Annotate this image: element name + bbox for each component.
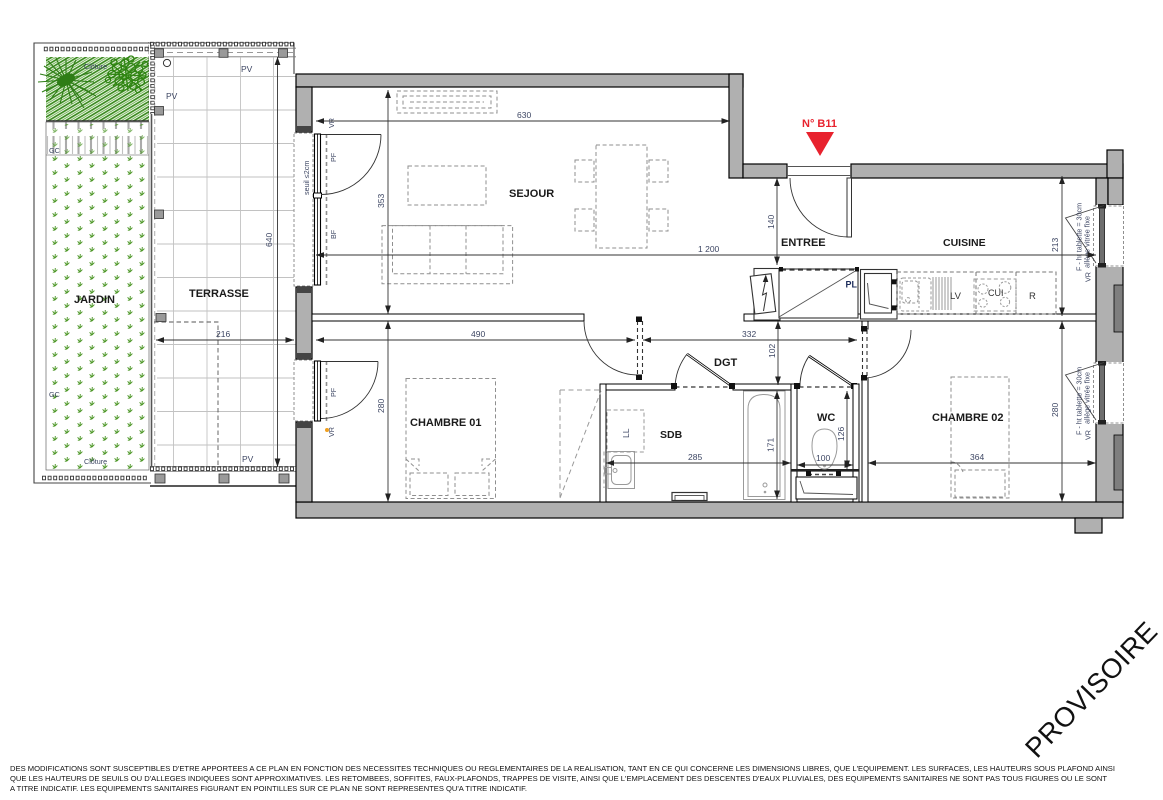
svg-text:332: 332	[742, 329, 756, 339]
svg-text:280: 280	[1050, 403, 1060, 417]
svg-text:280: 280	[376, 399, 386, 413]
svg-text:353: 353	[376, 194, 386, 208]
svg-text:VR: VR	[327, 427, 336, 437]
svg-text:VR: VR	[327, 118, 336, 128]
svg-text:WC: WC	[817, 412, 835, 424]
svg-text:LL: LL	[621, 428, 631, 438]
svg-text:Clôture: Clôture	[84, 457, 107, 466]
svg-text:CHAMBRE 01: CHAMBRE 01	[410, 417, 482, 429]
svg-text:490: 490	[471, 329, 485, 339]
svg-text:DES MODIFICATIONS SONT SUSCEPT: DES MODIFICATIONS SONT SUSCEPTIBLES D'ET…	[10, 764, 1115, 773]
svg-text:VR: VR	[1084, 430, 1093, 440]
svg-text:allège vitrée fixe: allège vitrée fixe	[1083, 216, 1092, 268]
svg-text:R: R	[1029, 291, 1036, 302]
svg-text:CHAMBRE 02: CHAMBRE 02	[932, 412, 1004, 424]
svg-text:N° B11: N° B11	[802, 118, 837, 130]
svg-text:364: 364	[970, 452, 984, 462]
svg-text:PV: PV	[241, 64, 253, 74]
svg-text:Clôture: Clôture	[84, 62, 107, 71]
svg-text:TERRASSE: TERRASSE	[189, 288, 249, 300]
svg-text:PV: PV	[166, 91, 178, 101]
svg-text:1 200: 1 200	[698, 244, 720, 254]
svg-text:BF: BF	[329, 229, 338, 239]
svg-text:allège vitrée fixe: allège vitrée fixe	[1083, 372, 1092, 424]
svg-text:PV: PV	[242, 454, 254, 464]
svg-text:GC: GC	[49, 390, 60, 399]
svg-text:PL: PL	[846, 280, 858, 290]
svg-text:CUI: CUI	[988, 288, 1004, 298]
svg-text:216: 216	[216, 329, 230, 339]
svg-text:PF: PF	[329, 387, 338, 397]
svg-text:CUISINE: CUISINE	[943, 237, 986, 249]
svg-text:213: 213	[1050, 238, 1060, 252]
svg-text:seuil ≤2cm: seuil ≤2cm	[302, 161, 311, 195]
svg-text:102: 102	[767, 344, 777, 358]
svg-text:171: 171	[766, 438, 776, 452]
svg-text:SDB: SDB	[660, 429, 683, 441]
svg-text:A TITRE INDICATIF. LES EQUIPEM: A TITRE INDICATIF. LES EQUIPEMENTS SANIT…	[10, 784, 527, 793]
svg-text:ENTREE: ENTREE	[781, 237, 826, 249]
svg-text:JARDIN: JARDIN	[74, 294, 115, 306]
svg-text:630: 630	[517, 110, 531, 120]
svg-text:LV: LV	[950, 291, 962, 302]
svg-text:126: 126	[836, 427, 846, 441]
svg-text:SEJOUR: SEJOUR	[509, 188, 554, 200]
svg-text:DGT: DGT	[714, 357, 738, 369]
svg-text:VR: VR	[1084, 272, 1093, 282]
svg-text:100: 100	[816, 453, 830, 463]
svg-text:285: 285	[688, 452, 702, 462]
svg-text:140: 140	[766, 215, 776, 229]
svg-text:PF: PF	[329, 152, 338, 162]
svg-text:QUE LES HAUTEURS DE SEUILS OU: QUE LES HAUTEURS DE SEUILS OU D'ALLEGES …	[10, 774, 1108, 783]
svg-text:640: 640	[264, 233, 274, 247]
